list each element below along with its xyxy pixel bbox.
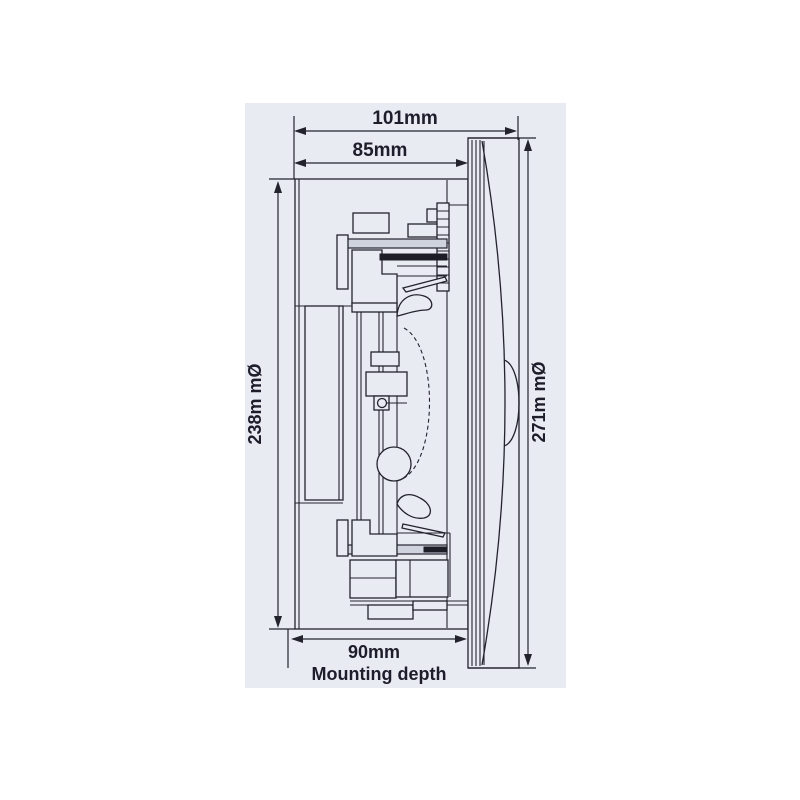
speaker-dimension-diagram: 101mm 85mm 238m mØ 271m mØ bbox=[0, 0, 800, 800]
pivot-circle bbox=[378, 399, 387, 408]
label-cutout-diameter: 238m mØ bbox=[245, 363, 265, 444]
front-flange bbox=[468, 138, 519, 668]
lower-circle bbox=[377, 447, 411, 481]
bottom-bracket-right bbox=[396, 560, 448, 597]
speaker-drawing bbox=[295, 138, 519, 668]
voice-coil-block bbox=[366, 372, 407, 396]
label-mounting-depth-caption: Mounting depth bbox=[312, 664, 447, 684]
top-dark-band bbox=[380, 254, 447, 260]
bottom-dark-band bbox=[424, 547, 447, 552]
label-overall-depth: 101mm bbox=[372, 108, 438, 129]
top-rail bbox=[343, 239, 447, 248]
top-bracket bbox=[353, 213, 389, 233]
label-overall-diameter: 271m mØ bbox=[529, 361, 549, 442]
bottom-small-block-2 bbox=[413, 601, 447, 610]
magnet-block bbox=[305, 306, 343, 500]
left-tab-bottom bbox=[337, 520, 348, 556]
label-body-depth: 85mm bbox=[353, 140, 408, 161]
left-tab-top bbox=[337, 235, 348, 289]
bottom-small-block-1 bbox=[368, 605, 413, 619]
step-base-band bbox=[352, 303, 397, 312]
page: 101mm 85mm 238m mØ 271m mØ bbox=[0, 0, 800, 800]
bottom-bracket-left bbox=[350, 560, 396, 598]
spider-block bbox=[371, 352, 399, 366]
label-mounting-depth-value: 90mm bbox=[348, 642, 400, 662]
